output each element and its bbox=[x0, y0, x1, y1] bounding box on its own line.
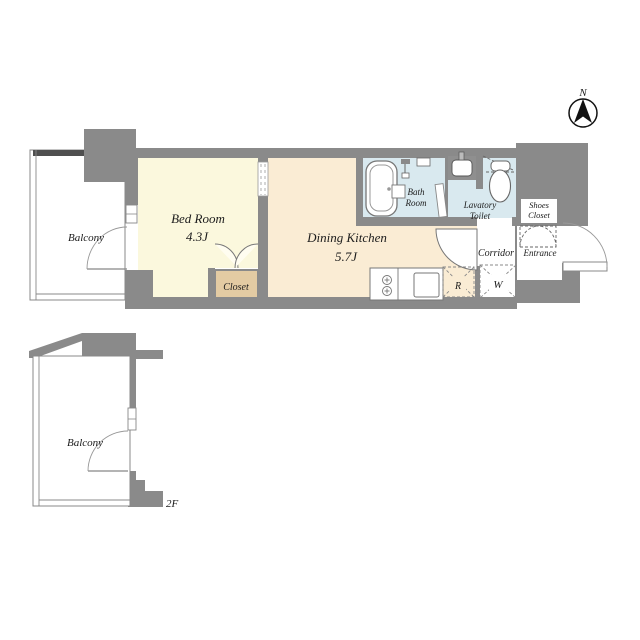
balcony-top-dark-bar bbox=[33, 150, 84, 156]
wall-lavatory-stub bbox=[476, 153, 483, 189]
wall-2f-tab bbox=[136, 350, 163, 359]
entrance-door-swing bbox=[563, 223, 607, 267]
bathtub-drain bbox=[387, 187, 391, 191]
floorplan-drawing: N Balcony Bed Room 4.3J Dining Kitchen 5… bbox=[0, 0, 640, 640]
entrance-label: Entrance bbox=[523, 248, 557, 258]
compass-north-label: N bbox=[578, 87, 587, 99]
sink-faucet bbox=[459, 152, 464, 160]
bath-label-line1: Bath bbox=[408, 187, 425, 197]
bath-shelf bbox=[417, 158, 430, 166]
shoes-closet-label-line1: Shoes bbox=[529, 200, 550, 210]
wall-bedroom-dk bbox=[258, 196, 268, 309]
corridor-label: Corridor bbox=[478, 248, 514, 259]
wall-entrance-bottom bbox=[517, 280, 580, 303]
wall-2f-step bbox=[128, 480, 163, 507]
dining-kitchen-size-label: 5.7J bbox=[335, 249, 358, 264]
washer-label: W bbox=[493, 279, 503, 291]
kitchen-sink bbox=[414, 273, 439, 297]
floorplan-page: N Balcony Bed Room 4.3J Dining Kitchen 5… bbox=[0, 0, 640, 640]
wall-balcony-bedroom-upper bbox=[125, 158, 138, 205]
lavatory-label-line1: Lavatory bbox=[463, 200, 497, 210]
wall-closet-left bbox=[208, 268, 215, 300]
bedroom-size-label: 4.3J bbox=[186, 229, 209, 244]
wall-rw-stub bbox=[475, 266, 480, 297]
shoes-closet-label-line2: Closet bbox=[528, 210, 550, 220]
closet-label: Closet bbox=[223, 282, 249, 293]
wall-2f-slope bbox=[29, 333, 82, 358]
lavatory-label-line2: Toilet bbox=[470, 211, 491, 221]
balcony-2f-floor bbox=[33, 356, 130, 506]
balcony-label: Balcony bbox=[68, 232, 104, 244]
shower-fixture bbox=[401, 159, 410, 164]
wall-bath-west bbox=[356, 156, 363, 220]
bath-stool bbox=[392, 185, 405, 198]
compass: N bbox=[569, 87, 597, 127]
balcony-2f-label: Balcony bbox=[67, 437, 103, 449]
toilet-bowl bbox=[490, 170, 511, 202]
dining-kitchen-label: Dining Kitchen bbox=[306, 230, 387, 245]
wall-bath-south bbox=[356, 217, 477, 226]
entrance-door-leaf bbox=[563, 262, 607, 271]
sink-basin bbox=[452, 160, 472, 176]
shoes-closet-doors bbox=[520, 226, 556, 247]
wall-bedroom-step bbox=[125, 270, 153, 309]
bedroom-dk-sliding-door bbox=[258, 162, 268, 196]
bath-label-line2: Room bbox=[405, 198, 427, 208]
floor-2f-label: 2F bbox=[166, 498, 179, 510]
balcony-2f-diagram bbox=[33, 356, 136, 506]
bedroom-label: Bed Room bbox=[171, 211, 225, 226]
refrigerator-label: R bbox=[454, 281, 461, 292]
